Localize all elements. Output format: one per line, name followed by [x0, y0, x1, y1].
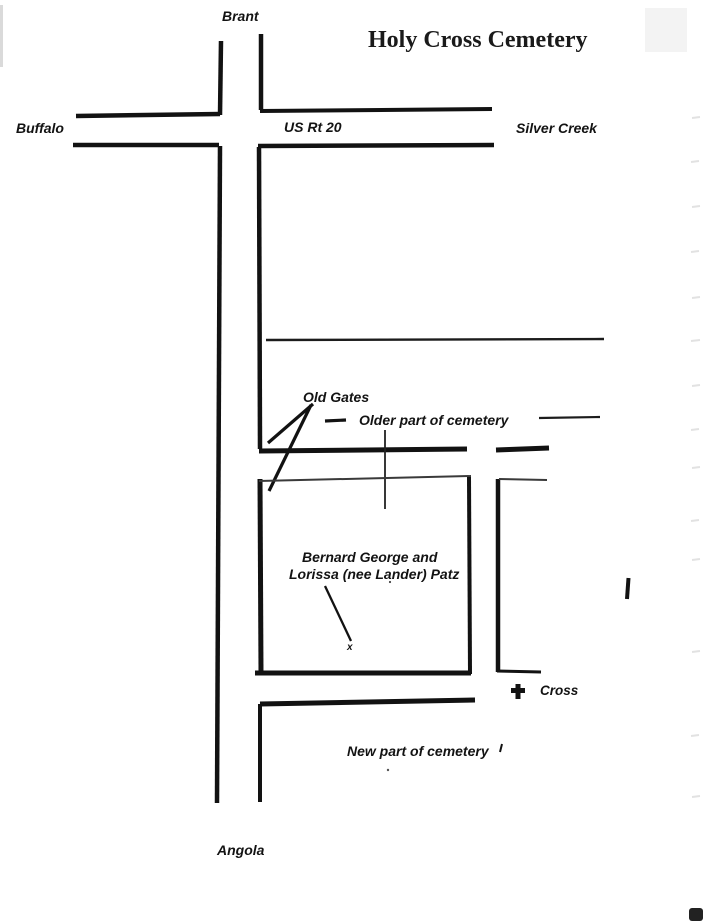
svg-text:New part of cemetery: New part of cemetery [347, 743, 490, 759]
svg-text:Holy Cross Cemetery: Holy Cross Cemetery [368, 27, 588, 53]
svg-text:x: x [346, 642, 353, 653]
svg-text:Cross: Cross [540, 683, 579, 698]
svg-text:Brant: Brant [222, 8, 260, 24]
svg-text:Lorissa (nee Lander) Patz: Lorissa (nee Lander) Patz [289, 566, 459, 582]
svg-text:Bernard George and: Bernard George and [302, 549, 438, 565]
svg-text:US Rt 20: US Rt 20 [284, 119, 342, 135]
svg-text:Old Gates: Old Gates [303, 389, 369, 405]
svg-text:Older part of cemetery: Older part of cemetery [359, 412, 510, 428]
svg-text:Angola: Angola [216, 842, 265, 858]
svg-text:Buffalo: Buffalo [16, 120, 64, 136]
svg-text:Silver Creek: Silver Creek [516, 120, 598, 136]
